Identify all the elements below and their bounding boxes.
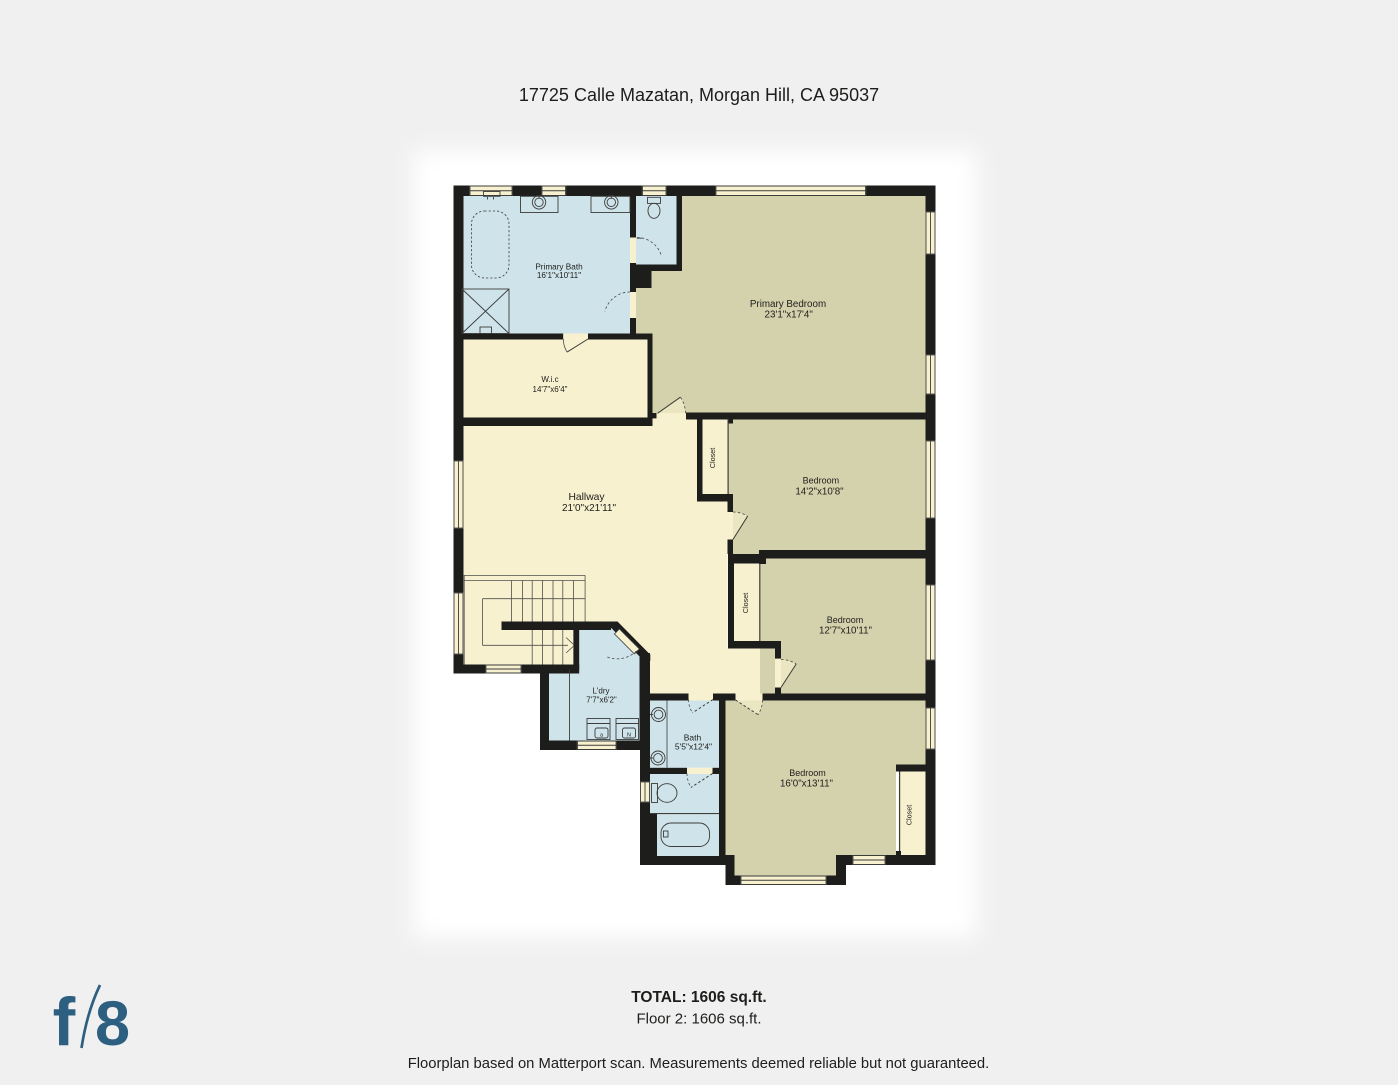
svg-text:14'7"x6'4": 14'7"x6'4" [533, 385, 568, 394]
svg-text:f: f [53, 984, 76, 1060]
svg-text:Floor 2: 1606 sq.ft.: Floor 2: 1606 sq.ft. [636, 1011, 761, 1028]
svg-text:16'0"x13'11": 16'0"x13'11" [780, 779, 834, 790]
svg-text:Closet: Closet [741, 593, 750, 613]
svg-text:TOTAL: 1606 sq.ft.: TOTAL: 1606 sq.ft. [631, 989, 767, 1006]
svg-text:Floorplan based on Matterport: Floorplan based on Matterport scan. Meas… [408, 1056, 990, 1072]
svg-text:Bedroom: Bedroom [803, 476, 840, 486]
svg-text:Closet: Closet [905, 805, 914, 825]
svg-text:Hallway: Hallway [568, 492, 605, 503]
svg-text:Bedroom: Bedroom [789, 768, 826, 778]
svg-text:12'7"x10'11": 12'7"x10'11" [819, 626, 873, 637]
svg-text:16'1"x10'11": 16'1"x10'11" [537, 271, 581, 280]
svg-text:L'dry: L'dry [592, 687, 609, 696]
svg-text:Bedroom: Bedroom [827, 615, 864, 625]
svg-text:17725 Calle Mazatan, Morgan Hi: 17725 Calle Mazatan, Morgan Hill, CA 950… [519, 85, 879, 105]
svg-text:23'1"x17'4": 23'1"x17'4" [765, 309, 814, 320]
svg-text:Closet: Closet [708, 448, 717, 468]
svg-text:21'0"x21'11": 21'0"x21'11" [562, 503, 617, 514]
svg-text:8: 8 [95, 989, 130, 1059]
svg-text:14'2"x10'8": 14'2"x10'8" [795, 487, 844, 498]
svg-text:W.i.c: W.i.c [541, 375, 558, 384]
svg-text:7'7"x6'2": 7'7"x6'2" [586, 696, 617, 705]
svg-text:5'5"x12'4": 5'5"x12'4" [675, 742, 712, 752]
svg-text:N: N [627, 733, 631, 739]
